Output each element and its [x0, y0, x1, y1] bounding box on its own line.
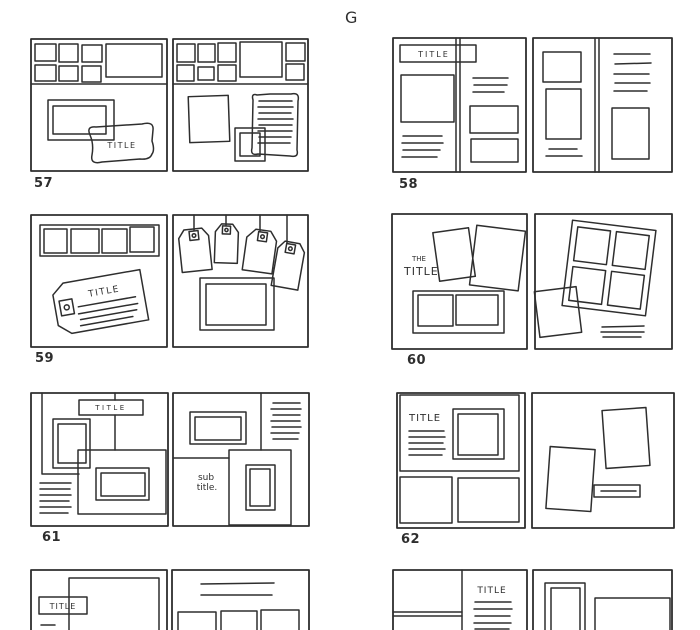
sketch-number: 60: [407, 353, 426, 368]
photo: [433, 228, 475, 282]
photo-frame: [200, 278, 274, 330]
title-text: TITLE: [87, 284, 121, 300]
sketch-58-left-page: TITLE: [393, 38, 526, 172]
title-text: TITLE: [408, 413, 441, 424]
title-text: TITLE: [49, 602, 77, 611]
hanging-tag: [178, 228, 212, 273]
sketch-57-drawing: TITLE: [30, 38, 310, 173]
sketch-number: 57: [34, 176, 53, 191]
sketch-63-partial: TITLE: [30, 568, 310, 630]
sketch-60-left-page: THE TITLE: [392, 214, 527, 349]
photo-mat: [78, 450, 166, 514]
subtitle-text-line1: sub: [198, 473, 214, 483]
subtitle-text-line2: title.: [197, 483, 217, 493]
sketch-62-right-page: [532, 393, 674, 528]
title-text: TITLE: [106, 141, 136, 150]
title-text: TITLE: [94, 404, 126, 412]
title-prefix-text: THE: [411, 255, 426, 263]
sketch-64-left-page: TITLE: [393, 570, 527, 630]
title-block: TITLE: [89, 123, 154, 162]
title-text: TITLE: [476, 586, 506, 596]
sketch-58-right-page: [533, 38, 672, 172]
photo: [534, 287, 581, 338]
photo: [401, 75, 454, 122]
caption-strip: [594, 485, 640, 497]
hanging-tag: [271, 240, 306, 290]
sketch-58-drawing: TITLE: [392, 37, 674, 174]
photo-frame: [190, 412, 246, 444]
journal-block: [252, 94, 299, 157]
sketch-61-right-page: sub title.: [173, 393, 309, 526]
title-banner: TITLE: [400, 45, 476, 62]
sketch-64-right-page: [533, 570, 672, 630]
title-banner: TITLE: [79, 400, 143, 415]
photo-frame: [53, 419, 90, 468]
sketch-62-left-page: TITLE: [397, 393, 525, 528]
sketch-number: 62: [401, 532, 420, 547]
sketch-64-partial: TITLE: [392, 568, 674, 630]
sketch-61-drawing: TITLE sub title.: [30, 392, 310, 527]
sketch-61-left-page: TITLE: [31, 393, 168, 526]
photo: [602, 408, 650, 469]
sketch-59-left-page: TITLE: [31, 215, 167, 347]
photo: [546, 447, 595, 512]
sketch-57: TITLE 57: [30, 38, 310, 173]
title-text: TITLE: [417, 50, 450, 59]
title-banner: TITLE: [39, 597, 87, 614]
sketch-59-right-page: [173, 215, 308, 347]
photo: [188, 95, 230, 142]
sketch-58: TITLE 58: [392, 37, 674, 174]
sketch-number: 61: [42, 530, 61, 545]
photo-mat: [413, 291, 504, 333]
sketch-57-right-page: [173, 39, 308, 171]
window-frame: [562, 220, 656, 316]
sketch-number: 58: [399, 177, 418, 192]
hanging-tag: [214, 224, 238, 264]
sketch-63-right-page: [172, 570, 309, 630]
subtitle-block: sub title.: [197, 473, 217, 493]
photo-frame: [453, 409, 504, 459]
photo-frame: [235, 128, 265, 161]
photo-frame: [48, 100, 114, 140]
filmstrip: [40, 225, 159, 256]
photo-frame: [545, 583, 585, 630]
sketch-59: TITLE 59: [30, 214, 310, 348]
title-tag: TITLE: [51, 270, 148, 336]
sketch-63-drawing: TITLE: [30, 568, 310, 630]
sketch-60: THE TITLE 60: [391, 213, 673, 350]
sketch-62: TITLE 62: [396, 392, 676, 529]
photo: [470, 225, 526, 291]
sketch-number: 59: [35, 351, 54, 366]
sketch-64-drawing: TITLE: [392, 568, 674, 630]
sketch-57-left-page: TITLE: [31, 39, 167, 171]
page-header-letter: G: [345, 8, 357, 27]
sketch-60-drawing: THE TITLE: [391, 213, 673, 350]
sketch-62-drawing: TITLE: [396, 392, 676, 529]
sketch-59-drawing: TITLE: [30, 214, 310, 348]
sketch-sheet: { "page": { "header_letter": "G", "ink_c…: [0, 0, 700, 630]
title-text: TITLE: [403, 265, 439, 278]
photo-mat: [229, 450, 291, 525]
sketch-60-right-page: [534, 214, 672, 349]
hanging-tag: [242, 228, 278, 274]
sketch-61: TITLE sub title.: [30, 392, 310, 527]
sketch-63-left-page: TITLE: [31, 570, 167, 630]
